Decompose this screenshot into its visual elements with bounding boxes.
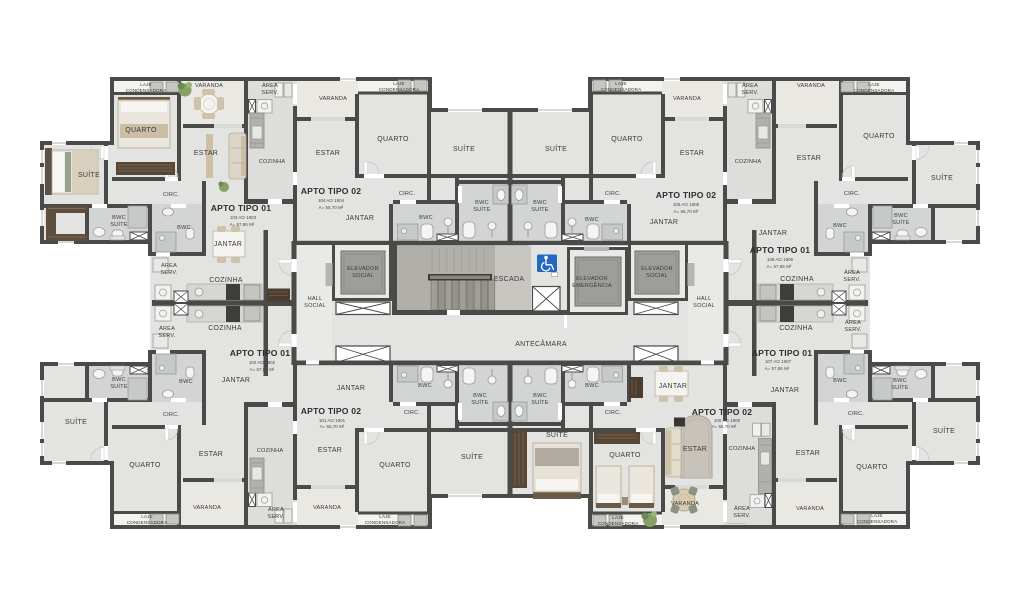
svg-text:A= 56,70 M²: A= 56,70 M²	[674, 209, 699, 214]
svg-text:BWC: BWC	[419, 215, 433, 221]
svg-text:A= 57,86 M²: A= 57,86 M²	[765, 366, 790, 371]
svg-text:APTO TIPO 01: APTO TIPO 01	[752, 348, 813, 358]
svg-text:ESCADA: ESCADA	[494, 276, 525, 283]
svg-text:A= 55,70 M²: A= 55,70 M²	[712, 424, 737, 429]
svg-text:SUÍTE: SUÍTE	[78, 170, 100, 179]
svg-text:BWC: BWC	[179, 379, 193, 385]
svg-text:CIRC.: CIRC.	[605, 191, 621, 197]
svg-text:COZINHA: COZINHA	[779, 325, 813, 332]
svg-text:SERV.: SERV.	[741, 90, 758, 96]
svg-text:QUARTO: QUARTO	[863, 133, 895, 140]
svg-text:ESTAR: ESTAR	[316, 150, 340, 157]
svg-text:CONDENSADORA: CONDENSADORA	[127, 520, 168, 525]
svg-text:ESTAR: ESTAR	[797, 155, 821, 162]
svg-text:LAJE: LAJE	[612, 515, 623, 520]
svg-text:BWC: BWC	[833, 378, 847, 384]
svg-text:SUÍTE: SUÍTE	[461, 452, 483, 461]
svg-text:BWC: BWC	[112, 215, 126, 221]
svg-text:BWC: BWC	[177, 225, 191, 231]
svg-text:ÁREA: ÁREA	[734, 505, 750, 512]
svg-text:CIRC.: CIRC.	[163, 412, 179, 418]
svg-text:QUARTO: QUARTO	[379, 462, 411, 469]
svg-text:EMERGÊNCIA: EMERGÊNCIA	[572, 281, 612, 289]
svg-text:CONDENSADORA: CONDENSADORA	[857, 519, 898, 524]
svg-text:JANTAR: JANTAR	[337, 385, 366, 392]
svg-text:BWC: BWC	[475, 200, 489, 206]
svg-text:LAJE: LAJE	[393, 81, 404, 86]
svg-text:ESTAR: ESTAR	[194, 150, 218, 157]
svg-text:ÁREA: ÁREA	[262, 82, 278, 89]
svg-text:SUÍTE: SUÍTE	[531, 206, 549, 213]
svg-text:JANTAR: JANTAR	[650, 219, 679, 226]
svg-text:BWC: BWC	[585, 383, 599, 389]
svg-text:QUARTO: QUARTO	[125, 127, 157, 134]
svg-text:CIRC.: CIRC.	[848, 411, 864, 417]
svg-text:CIRC.: CIRC.	[844, 191, 860, 197]
svg-text:BWC: BWC	[585, 217, 599, 223]
svg-text:CONDENSADORA: CONDENSADORA	[601, 87, 642, 92]
svg-text:VARANDA: VARANDA	[671, 501, 699, 507]
svg-text:LAJE: LAJE	[141, 514, 152, 519]
svg-text:CONDENSADORA: CONDENSADORA	[126, 88, 167, 93]
svg-text:105 AO 1905: 105 AO 1905	[673, 202, 700, 207]
svg-text:SUÍTE: SUÍTE	[453, 144, 475, 153]
svg-text:LAJE: LAJE	[615, 81, 626, 86]
svg-text:A= 57,86 M²: A= 57,86 M²	[230, 222, 255, 227]
svg-text:ÁREA: ÁREA	[268, 506, 284, 513]
svg-text:SOCIAL: SOCIAL	[304, 303, 326, 309]
svg-text:LAJE: LAJE	[379, 514, 390, 519]
svg-text:JANTAR: JANTAR	[771, 387, 800, 394]
svg-text:SERV.: SERV.	[158, 333, 175, 339]
svg-text:HALL: HALL	[308, 296, 323, 302]
svg-text:BWC: BWC	[533, 393, 547, 399]
svg-text:APTO TIPO 02: APTO TIPO 02	[301, 406, 362, 416]
svg-text:A= 55,70 M²: A= 55,70 M²	[320, 424, 345, 429]
svg-text:APTO TIPO 02: APTO TIPO 02	[301, 186, 362, 196]
svg-text:JANTAR: JANTAR	[659, 383, 688, 390]
svg-text:107 AO 1907: 107 AO 1907	[765, 359, 792, 364]
svg-text:BWC: BWC	[473, 393, 487, 399]
svg-text:QUARTO: QUARTO	[856, 464, 888, 471]
svg-text:A= 57,86 M²: A= 57,86 M²	[767, 264, 792, 269]
svg-text:SERV.: SERV.	[267, 514, 284, 520]
svg-text:ÁREA: ÁREA	[844, 269, 860, 276]
svg-text:SUÍTE: SUÍTE	[110, 221, 128, 228]
svg-text:SUÍTE: SUÍTE	[931, 173, 953, 182]
svg-text:LAJE: LAJE	[140, 82, 151, 87]
svg-text:ESTAR: ESTAR	[796, 450, 820, 457]
svg-text:JANTAR: JANTAR	[759, 230, 788, 237]
svg-text:COZINHA: COZINHA	[208, 325, 242, 332]
svg-text:ESTAR: ESTAR	[680, 150, 704, 157]
svg-text:COZINHA: COZINHA	[209, 277, 243, 284]
svg-text:APTO TIPO 01: APTO TIPO 01	[211, 203, 272, 213]
svg-text:HALL: HALL	[697, 296, 712, 302]
svg-text:VARANDA: VARANDA	[797, 83, 825, 89]
svg-text:SUÍTE: SUÍTE	[110, 383, 128, 390]
svg-text:COZINHA: COZINHA	[735, 159, 762, 165]
svg-text:COZINHA: COZINHA	[780, 276, 814, 283]
svg-text:ELEVADOR: ELEVADOR	[641, 266, 673, 272]
svg-text:JANTAR: JANTAR	[214, 241, 243, 248]
svg-text:SUÍTE: SUÍTE	[892, 219, 910, 226]
svg-text:VARANDA: VARANDA	[319, 96, 347, 102]
svg-text:SUÍTE: SUÍTE	[473, 206, 491, 213]
svg-text:ESTAR: ESTAR	[683, 446, 707, 453]
svg-text:ELEVADOR: ELEVADOR	[347, 266, 379, 272]
svg-text:SUÍTE: SUÍTE	[891, 384, 909, 391]
svg-text:SOCIAL: SOCIAL	[352, 273, 374, 279]
svg-text:CIRC.: CIRC.	[399, 191, 415, 197]
svg-text:SERV.: SERV.	[261, 90, 278, 96]
svg-text:SERV.: SERV.	[844, 327, 861, 333]
svg-text:QUARTO: QUARTO	[129, 462, 161, 469]
svg-text:CIRC.: CIRC.	[404, 410, 420, 416]
svg-text:VARANDA: VARANDA	[673, 96, 701, 102]
svg-text:SUÍTE: SUÍTE	[65, 417, 87, 426]
svg-text:103 AO 1903: 103 AO 1903	[230, 215, 257, 220]
svg-text:QUARTO: QUARTO	[377, 136, 409, 143]
svg-text:APTO TIPO 02: APTO TIPO 02	[656, 190, 717, 200]
svg-text:CIRC.: CIRC.	[163, 192, 179, 198]
svg-text:LAJE: LAJE	[871, 513, 882, 518]
svg-text:ÁREA: ÁREA	[845, 319, 861, 326]
svg-text:JANTAR: JANTAR	[222, 377, 251, 384]
svg-text:SERV.: SERV.	[733, 513, 750, 519]
svg-text:BWC: BWC	[894, 213, 908, 219]
svg-text:SERV.: SERV.	[843, 277, 860, 283]
svg-text:SUÍTE: SUÍTE	[546, 430, 568, 439]
svg-text:COZINHA: COZINHA	[259, 159, 286, 165]
svg-text:BWC: BWC	[893, 378, 907, 384]
svg-text:ELEVADOR: ELEVADOR	[576, 276, 608, 282]
svg-text:CONDENSADORA: CONDENSADORA	[854, 88, 895, 93]
svg-text:QUARTO: QUARTO	[609, 452, 641, 459]
svg-text:100 AO 1900: 100 AO 1900	[714, 418, 741, 423]
svg-text:CIRC.: CIRC.	[605, 410, 621, 416]
svg-text:102 AO 1902: 102 AO 1902	[249, 360, 276, 365]
svg-text:SERV.: SERV.	[160, 270, 177, 276]
svg-text:BWC: BWC	[833, 223, 847, 229]
svg-text:APTO TIPO 01: APTO TIPO 01	[230, 348, 291, 358]
svg-text:JANTAR: JANTAR	[346, 215, 375, 222]
svg-text:BWC: BWC	[112, 377, 126, 383]
svg-text:SOCIAL: SOCIAL	[693, 303, 715, 309]
svg-text:LAJE: LAJE	[868, 82, 879, 87]
svg-text:104 AO 1904: 104 AO 1904	[318, 198, 345, 203]
svg-text:A= 56,70 M²: A= 56,70 M²	[319, 205, 344, 210]
svg-text:VARANDA: VARANDA	[796, 506, 824, 512]
svg-text:ÁREA: ÁREA	[159, 325, 175, 332]
svg-text:ÁREA: ÁREA	[161, 262, 177, 269]
svg-text:BWC: BWC	[418, 383, 432, 389]
svg-text:VARANDA: VARANDA	[195, 83, 223, 89]
svg-text:CONDENSADORA: CONDENSADORA	[598, 521, 639, 526]
svg-text:ESTAR: ESTAR	[199, 451, 223, 458]
svg-text:VARANDA: VARANDA	[193, 505, 221, 511]
svg-text:106 AO 1906: 106 AO 1906	[767, 257, 794, 262]
svg-text:SOCIAL: SOCIAL	[646, 273, 668, 279]
svg-text:APTO TIPO 01: APTO TIPO 01	[750, 245, 811, 255]
svg-text:CONDENSADORA: CONDENSADORA	[365, 520, 406, 525]
svg-text:ÁREA: ÁREA	[742, 82, 758, 89]
svg-text:101 AO 1901: 101 AO 1901	[319, 418, 346, 423]
svg-text:BWC: BWC	[533, 200, 547, 206]
svg-text:ANTECÂMARA: ANTECÂMARA	[515, 339, 567, 348]
svg-text:CONDENSADORA: CONDENSADORA	[379, 87, 420, 92]
svg-text:SUÍTE: SUÍTE	[933, 426, 955, 435]
svg-text:COZINHA: COZINHA	[729, 446, 756, 452]
svg-text:SUÍTE: SUÍTE	[471, 399, 489, 406]
svg-text:QUARTO: QUARTO	[611, 136, 643, 143]
svg-text:A= 57,86 M²: A= 57,86 M²	[250, 367, 275, 372]
svg-text:ESTAR: ESTAR	[318, 447, 342, 454]
svg-text:APTO TIPO 02: APTO TIPO 02	[692, 407, 753, 417]
svg-text:VARANDA: VARANDA	[313, 505, 341, 511]
svg-text:SUÍTE: SUÍTE	[531, 399, 549, 406]
svg-text:SUÍTE: SUÍTE	[545, 144, 567, 153]
svg-text:COZINHA: COZINHA	[257, 448, 284, 454]
